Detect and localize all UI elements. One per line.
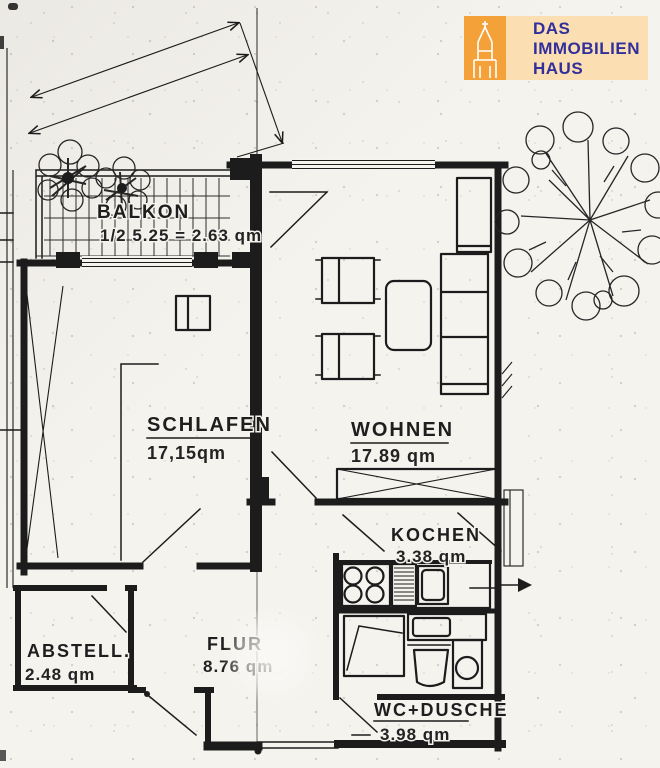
logo: DAS IMMOBILIEN HAUS [464,16,648,80]
neighbour-wall-lines [0,48,20,588]
svg-text:1/2 5.25 = 2.63 qm: 1/2 5.25 = 2.63 qm [100,226,262,245]
room-label-wohnen: WOHNEN 17.89 qm [351,419,454,466]
room-label-wc: WC+DUSCHE 3.98 qm [374,700,509,744]
scan-artifact [0,36,4,49]
church-tower-icon [464,16,506,80]
logo-icon-box [464,16,506,80]
shelf-unit [457,178,491,252]
svg-text:3.98 qm: 3.98 qm [380,725,450,744]
shower [344,616,404,676]
bedroom-nightstand [176,296,210,330]
svg-text:WOHNEN: WOHNEN [351,419,454,441]
bathroom-cabinet [408,614,486,640]
window-north-schlafen [82,256,192,269]
scan-smudge [222,608,322,703]
svg-text:3.38 qm: 3.38 qm [396,547,466,566]
logo-line-3: HAUS [533,59,648,79]
svg-text:SCHLAFEN: SCHLAFEN [147,414,272,436]
bedroom-marks [26,286,158,560]
svg-text:2.48 qm: 2.48 qm [25,665,95,684]
built-in-cupboard [337,469,496,499]
stove-burner [345,586,362,603]
svg-text:ABSTELL.: ABSTELL. [27,641,131,661]
scan-artifact [8,3,18,10]
living-room-chair [316,334,380,379]
floor-plan-drawing: BALKON 1/2 5.25 = 2.63 qm SCHLAFEN 17,15… [0,0,660,768]
svg-text:KOCHEN: KOCHEN [391,525,481,545]
room-label-kochen: KOCHEN 3.38 qm [391,525,481,566]
tree-icon [495,112,660,320]
coffee-table [386,281,431,350]
svg-text:WC+DUSCHE: WC+DUSCHE [374,700,509,720]
bush-icon [38,140,102,211]
stove-burner [367,568,384,585]
svg-text:BALKON: BALKON [97,202,190,223]
scan-artifact [0,750,6,761]
living-room-chair [316,258,380,303]
logo-text-box: DAS IMMOBILIEN HAUS [506,16,648,80]
svg-text:17,15qm: 17,15qm [147,443,226,463]
sofa [441,254,488,394]
washbasin [453,640,482,688]
room-label-abstell: ABSTELL. 2.48 qm [25,641,131,684]
scanned-floorplan-page: BALKON 1/2 5.25 = 2.63 qm SCHLAFEN 17,15… [0,0,660,768]
logo-line-1: DAS [533,19,648,39]
stove-burner [367,586,384,603]
stove-burner [345,568,362,585]
logo-line-2: IMMOBILIEN [533,39,648,59]
window-north-wohnen [292,158,435,171]
toilet [408,645,450,686]
svg-text:17.89 qm: 17.89 qm [351,446,436,466]
kitchen-counter [340,562,497,608]
